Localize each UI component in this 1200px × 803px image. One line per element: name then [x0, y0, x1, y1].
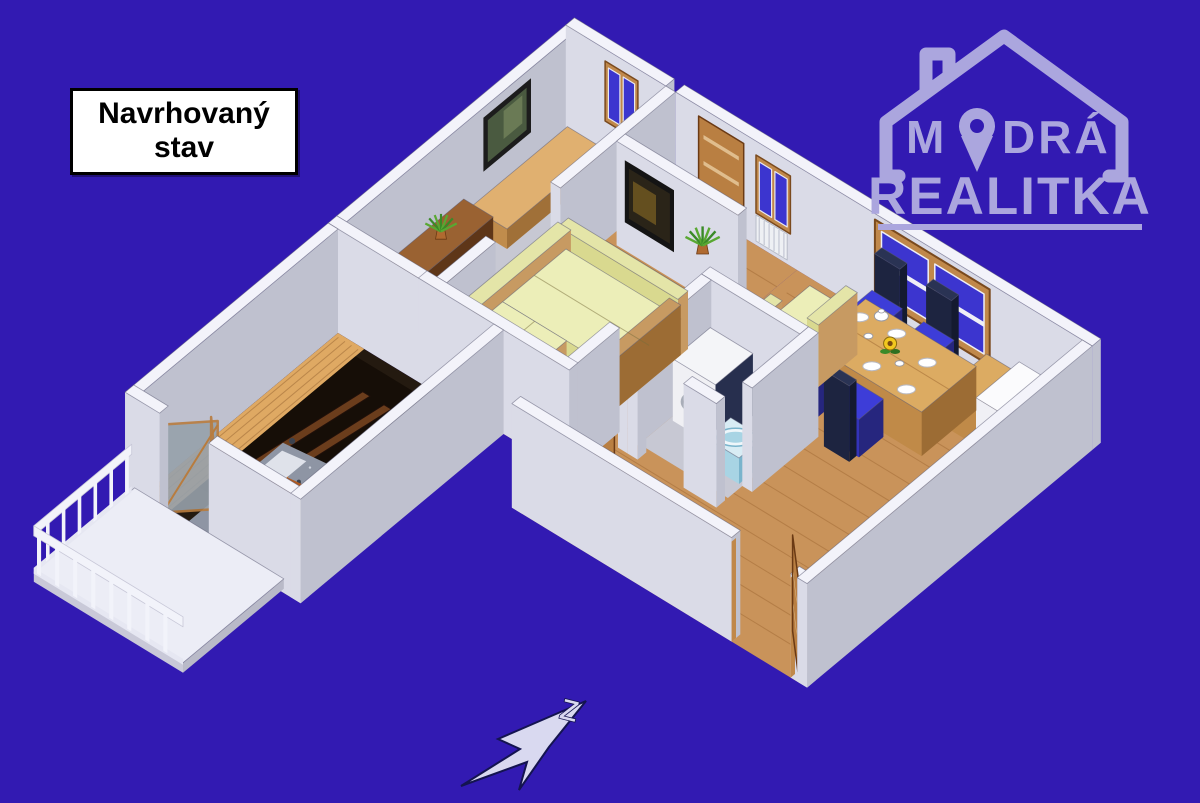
wing-wall-se	[291, 493, 301, 603]
cup	[864, 333, 873, 339]
bathroom-wall	[684, 384, 717, 508]
dining-chair	[824, 370, 849, 462]
logo-word-realitka: REALITKA	[868, 167, 1152, 226]
bathroom-wall	[716, 396, 725, 507]
logo-word-modra-m: M	[906, 111, 944, 163]
se-outer-wall	[797, 578, 807, 688]
bathroom-wall	[742, 382, 752, 492]
plate	[897, 385, 915, 394]
proposed-state-line1: Navrhovaný	[77, 97, 291, 131]
screenshot-stage: M DRÁ REALITKA Z Navrhovaný stav	[0, 0, 1200, 803]
wing-wall-sw	[160, 406, 169, 517]
plate	[918, 358, 936, 367]
logo-word-modra-rest: DRÁ	[1002, 111, 1111, 163]
plant-pot	[697, 244, 709, 254]
door-frame	[732, 538, 736, 642]
proposed-state-line2: stav	[77, 131, 291, 165]
plant-pot	[436, 230, 447, 239]
logo-underline	[878, 224, 1142, 230]
cup	[895, 361, 904, 367]
proposed-state-label: Navrhovaný stav	[70, 88, 298, 175]
main-ne-wall	[1092, 339, 1101, 450]
plate	[863, 362, 881, 371]
dining-chair	[849, 380, 856, 462]
